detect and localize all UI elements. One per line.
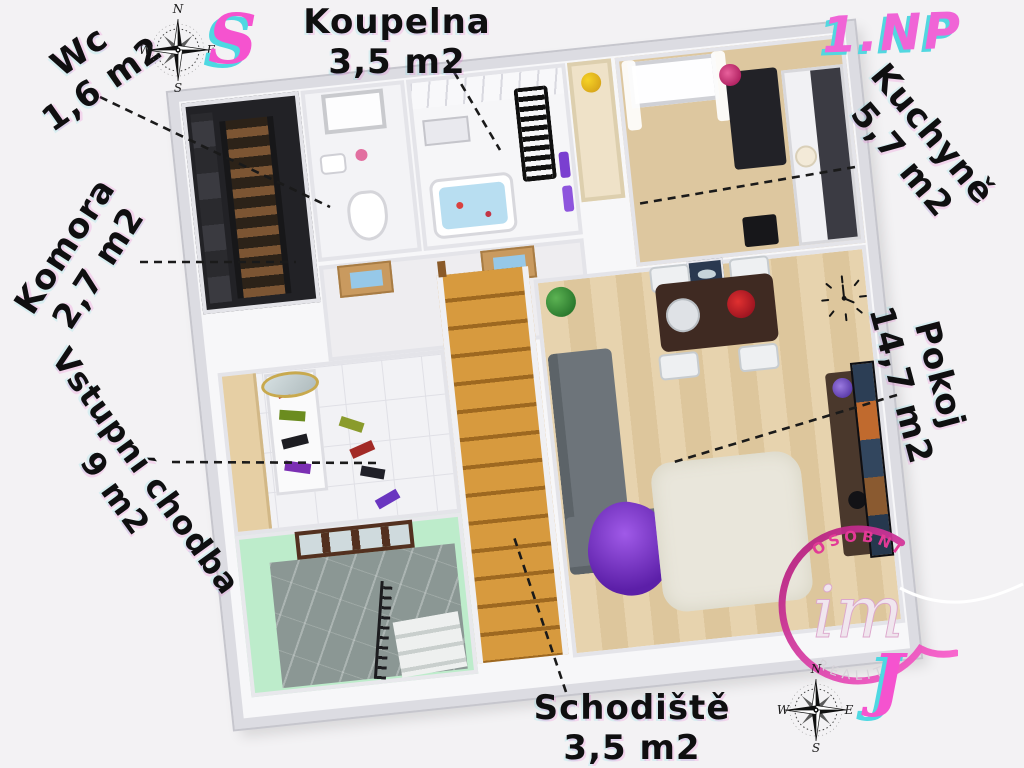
room-vstupni-chodba bbox=[217, 349, 461, 536]
floorplan-page: { "page": { "floor_label": "1.NP" }, "de… bbox=[0, 0, 1024, 768]
fridge bbox=[725, 67, 787, 170]
dining-table bbox=[655, 273, 779, 353]
room-kuchyne bbox=[615, 34, 866, 267]
purple-towel bbox=[562, 185, 575, 212]
entry-vestibule bbox=[235, 512, 479, 697]
room-name: Schodiště bbox=[532, 688, 732, 728]
room-koupelna bbox=[406, 63, 583, 251]
room-wc bbox=[300, 80, 421, 262]
pantry-shelf bbox=[219, 116, 291, 299]
coffee-machine bbox=[742, 214, 779, 247]
compass-diagonal-points bbox=[150, 22, 197, 69]
compass-n: N bbox=[810, 662, 822, 676]
bathtub bbox=[428, 171, 518, 239]
wc-flower-decor bbox=[355, 148, 368, 161]
bathtub-water bbox=[438, 181, 508, 230]
compass-rose-bottom: N E S W bbox=[776, 662, 856, 758]
shoes bbox=[339, 416, 365, 433]
slippers bbox=[375, 489, 401, 510]
wc-window bbox=[321, 88, 387, 134]
stair-newel-post bbox=[437, 261, 447, 278]
bathroom-sink bbox=[422, 116, 470, 147]
red-roses bbox=[726, 289, 757, 320]
north-letter: S bbox=[208, 6, 257, 74]
cake-plate bbox=[794, 144, 818, 168]
entry-steps bbox=[393, 611, 468, 678]
dining-chair bbox=[658, 351, 700, 381]
watermark-top-text: OSOBNÍ bbox=[809, 527, 909, 559]
potted-plant bbox=[544, 285, 577, 318]
shoes bbox=[279, 410, 306, 422]
compass-n: N bbox=[172, 2, 184, 16]
shoes bbox=[349, 440, 375, 459]
shoes bbox=[360, 466, 385, 480]
champagne-tray bbox=[664, 297, 701, 334]
south-letter: J bbox=[872, 646, 904, 714]
svg-text:OSOBNÍ: OSOBNÍ bbox=[809, 527, 909, 559]
dining-chair bbox=[738, 343, 780, 373]
label-komora: Komora 2,7 m2 bbox=[0, 156, 167, 359]
towel-radiator bbox=[513, 85, 557, 182]
kitchen-window bbox=[627, 53, 719, 108]
compass-w: W bbox=[777, 703, 791, 717]
wc-sink bbox=[319, 153, 347, 176]
compass-rose-top: N E S W bbox=[138, 2, 218, 98]
door-glass-pane bbox=[350, 269, 383, 288]
hall-door-open bbox=[337, 260, 394, 297]
label-koupelna: Koupelna 3,5 m2 bbox=[297, 2, 497, 82]
yellow-flowers bbox=[580, 72, 602, 94]
purple-towel bbox=[558, 151, 571, 178]
room-area: 3,5 m2 bbox=[297, 42, 497, 82]
label-schodiste: Schodiště 3,5 m2 bbox=[532, 688, 732, 768]
compass-e: E bbox=[844, 703, 854, 717]
room-name: Koupelna bbox=[297, 2, 497, 42]
compass-s: S bbox=[812, 741, 820, 754]
wc-toilet bbox=[345, 189, 390, 243]
shoes bbox=[281, 433, 309, 449]
shoes bbox=[284, 461, 311, 475]
floor-level-label: 1.NP bbox=[821, 6, 963, 61]
purple-flowers bbox=[831, 377, 853, 399]
compass-w: W bbox=[139, 43, 153, 57]
compass-s: S bbox=[174, 81, 182, 94]
room-area: 3,5 m2 bbox=[532, 728, 732, 768]
room-komora bbox=[181, 91, 321, 314]
